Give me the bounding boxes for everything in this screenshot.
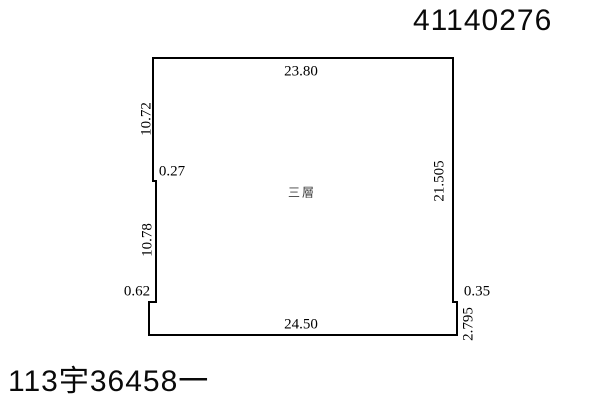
dimension-bottom: 24.50 [284,317,318,334]
dimension-top: 23.80 [284,64,318,81]
dimension-left-jog: 0.27 [159,164,185,181]
dimension-right: 21.505 [432,160,449,201]
dimension-right-stub: 2.795 [461,307,478,341]
dimension-bottom-left-jog: 0.62 [124,284,150,301]
dimension-left-lower: 10.78 [140,223,157,257]
case-number: 113宇36458一 [8,356,209,400]
dimension-left-upper: 10.72 [139,102,156,136]
floor-plan-drawing [0,0,603,401]
dimension-right-jog: 0.35 [464,284,490,301]
floor-count-label: 三層 [288,184,316,201]
